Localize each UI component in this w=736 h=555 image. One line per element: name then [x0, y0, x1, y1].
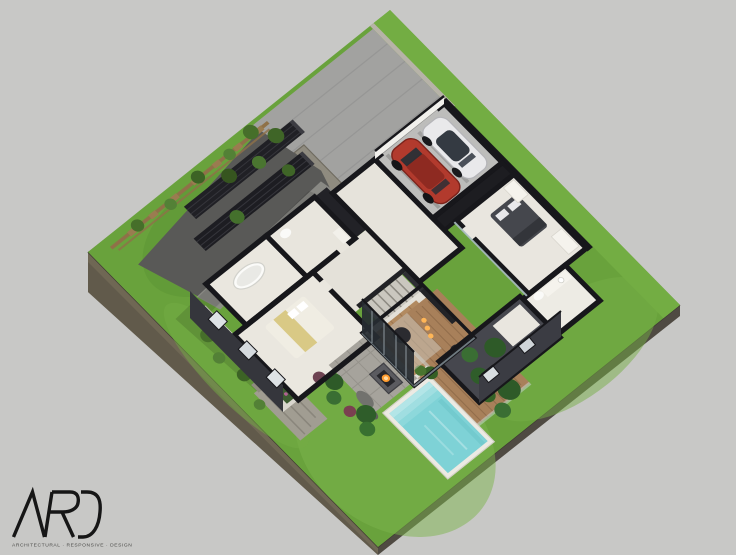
isometric-house-render: ARCHITECTURAL · RESPONSIVE · DESIGN [0, 0, 736, 555]
logo-tagline: ARCHITECTURAL · RESPONSIVE · DESIGN [12, 543, 132, 549]
render-canvas: ARCHITECTURAL · RESPONSIVE · DESIGN [0, 0, 736, 555]
